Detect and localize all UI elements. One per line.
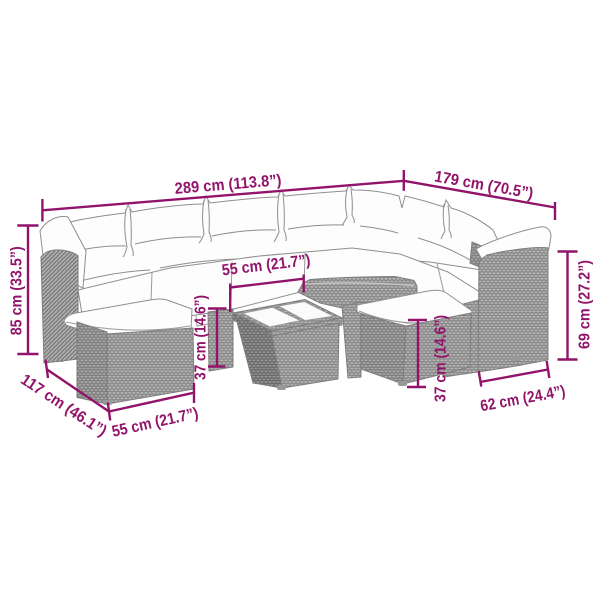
svg-text:37 cm (14.6”): 37 cm (14.6”) bbox=[193, 295, 210, 380]
svg-text:69 cm (27.2”): 69 cm (27.2”) bbox=[577, 260, 594, 349]
svg-text:85 cm (33.5”): 85 cm (33.5”) bbox=[9, 246, 26, 335]
svg-text:37 cm (14.6”): 37 cm (14.6”) bbox=[433, 315, 450, 402]
